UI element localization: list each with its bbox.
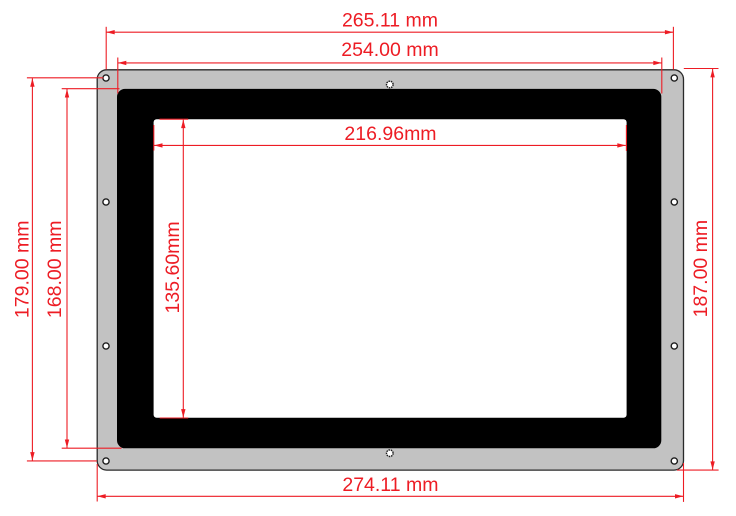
svg-text:187.00 mm: 187.00 mm: [690, 220, 712, 318]
svg-text:274.11 mm: 274.11 mm: [342, 474, 438, 496]
svg-text:135.60mm: 135.60mm: [162, 221, 184, 313]
svg-text:168.00 mm: 168.00 mm: [44, 221, 66, 319]
svg-text:254.00 mm: 254.00 mm: [341, 39, 439, 61]
svg-text:179.00 mm: 179.00 mm: [11, 221, 33, 319]
svg-text:216.96mm: 216.96mm: [344, 123, 436, 145]
svg-text:265.11 mm: 265.11 mm: [342, 10, 438, 32]
